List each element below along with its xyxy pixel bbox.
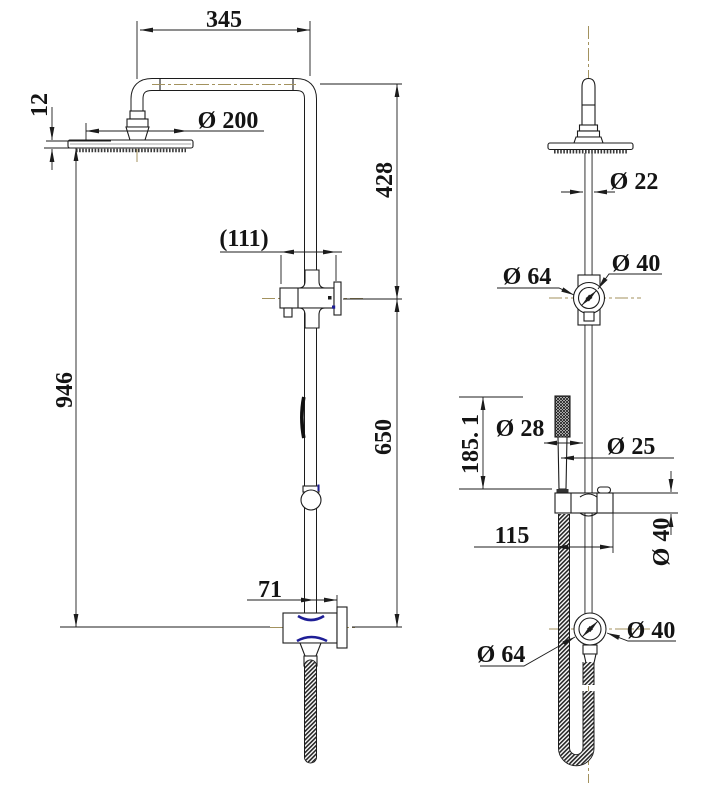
arm-tube-body xyxy=(137,85,311,614)
arm-centerline xyxy=(137,85,311,673)
dim-40-bottom-label: Ø 40 xyxy=(627,618,676,644)
dim-650-label: 650 xyxy=(371,419,397,455)
nut-top xyxy=(580,125,598,131)
holder-release-pill xyxy=(598,487,611,493)
diverter-bracket-front xyxy=(280,270,341,328)
dim-71-label: 71 xyxy=(258,577,282,603)
technical-drawing-canvas: 345 12 Ø 200 (111) xyxy=(0,0,705,789)
elbow-cone xyxy=(584,654,596,663)
arm-tube-outline xyxy=(137,85,311,614)
dim-bracket-diameter: Ø 40 xyxy=(597,471,678,566)
dim-head-diameter: Ø 200 xyxy=(86,108,264,141)
connector-nut xyxy=(127,119,148,127)
dim-946-label: 946 xyxy=(52,372,78,408)
head-disc-edge xyxy=(548,143,633,150)
side-view: Ø 22 Ø 64 Ø 40 185. 1 Ø 28 xyxy=(458,26,678,783)
handle-bar xyxy=(302,397,304,438)
dimensions-front: 345 12 Ø 200 (111) xyxy=(27,7,402,627)
diverter-bottom-flare xyxy=(299,308,325,328)
diverter-top-flare xyxy=(299,270,325,288)
bottom-bracket-front xyxy=(283,607,347,666)
diverter-center-mark xyxy=(328,296,332,300)
connector-cone xyxy=(126,127,149,140)
dim-pipe-diameter: Ø 22 xyxy=(561,169,658,195)
centerlines-front xyxy=(137,85,366,673)
arm-head-connector xyxy=(126,111,149,140)
dim-diverter-width: (111) xyxy=(219,226,342,284)
shower-set-technical-drawing: 345 12 Ø 200 (111) xyxy=(0,0,705,789)
ball-joint xyxy=(301,490,321,510)
dim-head-thickness: 12 xyxy=(27,93,111,170)
dim-345-label: 345 xyxy=(206,7,242,33)
handshower-head xyxy=(555,396,570,437)
dim-64-mid-label: Ø 64 xyxy=(503,264,552,290)
knob-notch xyxy=(584,312,594,321)
dim-12-label: 12 xyxy=(27,93,53,117)
dim-22-label: Ø 22 xyxy=(610,169,659,195)
head-mount-cone xyxy=(574,137,603,143)
connector-nut-top xyxy=(130,111,145,119)
nut-bottom xyxy=(578,131,600,137)
dim-arm-reach: 345 xyxy=(137,7,310,79)
elbow-connector xyxy=(583,645,597,654)
dim-overall-height: 946 xyxy=(52,148,402,627)
dim-handshower-length: 185. 1 xyxy=(458,397,552,489)
front-view: 345 12 Ø 200 (111) xyxy=(27,7,402,757)
dim-200-label: Ø 200 xyxy=(198,108,259,134)
dim-40-mid-label: Ø 40 xyxy=(612,251,661,277)
diverter-wall-flange xyxy=(334,282,341,315)
shower-arm-and-riser xyxy=(137,78,311,613)
diverter-blue-detail xyxy=(332,306,335,309)
handshower-handle xyxy=(558,437,567,489)
dim-64-bottom-label: Ø 64 xyxy=(477,642,526,668)
dim-115-label: 115 xyxy=(495,523,530,549)
dim-40h-label: Ø 40 xyxy=(649,518,675,567)
holder-body xyxy=(555,493,613,513)
bracket-body xyxy=(283,613,337,643)
diverter-body xyxy=(280,288,334,308)
overhead-shower-side xyxy=(548,79,633,152)
dim-185-label: 185. 1 xyxy=(458,414,484,474)
overhead-shower-front xyxy=(68,140,193,151)
diverter-knob-side xyxy=(574,275,605,325)
dim-wall-offset: 71 xyxy=(247,577,337,611)
hand-shower-side xyxy=(555,396,570,495)
dim-111-label: (111) xyxy=(219,226,268,252)
dim-28-label: Ø 28 xyxy=(496,416,545,442)
arm-capsule xyxy=(582,79,595,126)
dim-upper-drop: 428 xyxy=(320,84,402,299)
dim-rail-diameter: Ø 25 xyxy=(561,434,674,460)
dim-25-label: Ø 25 xyxy=(607,434,656,460)
elbow-knob-side xyxy=(574,613,606,663)
bracket-cone xyxy=(300,643,321,656)
diverter-stub xyxy=(284,308,292,317)
dim-lower-drop: 650 xyxy=(371,299,397,627)
bracket-wall-flange xyxy=(337,607,347,648)
dim-428-label: 428 xyxy=(372,162,398,198)
